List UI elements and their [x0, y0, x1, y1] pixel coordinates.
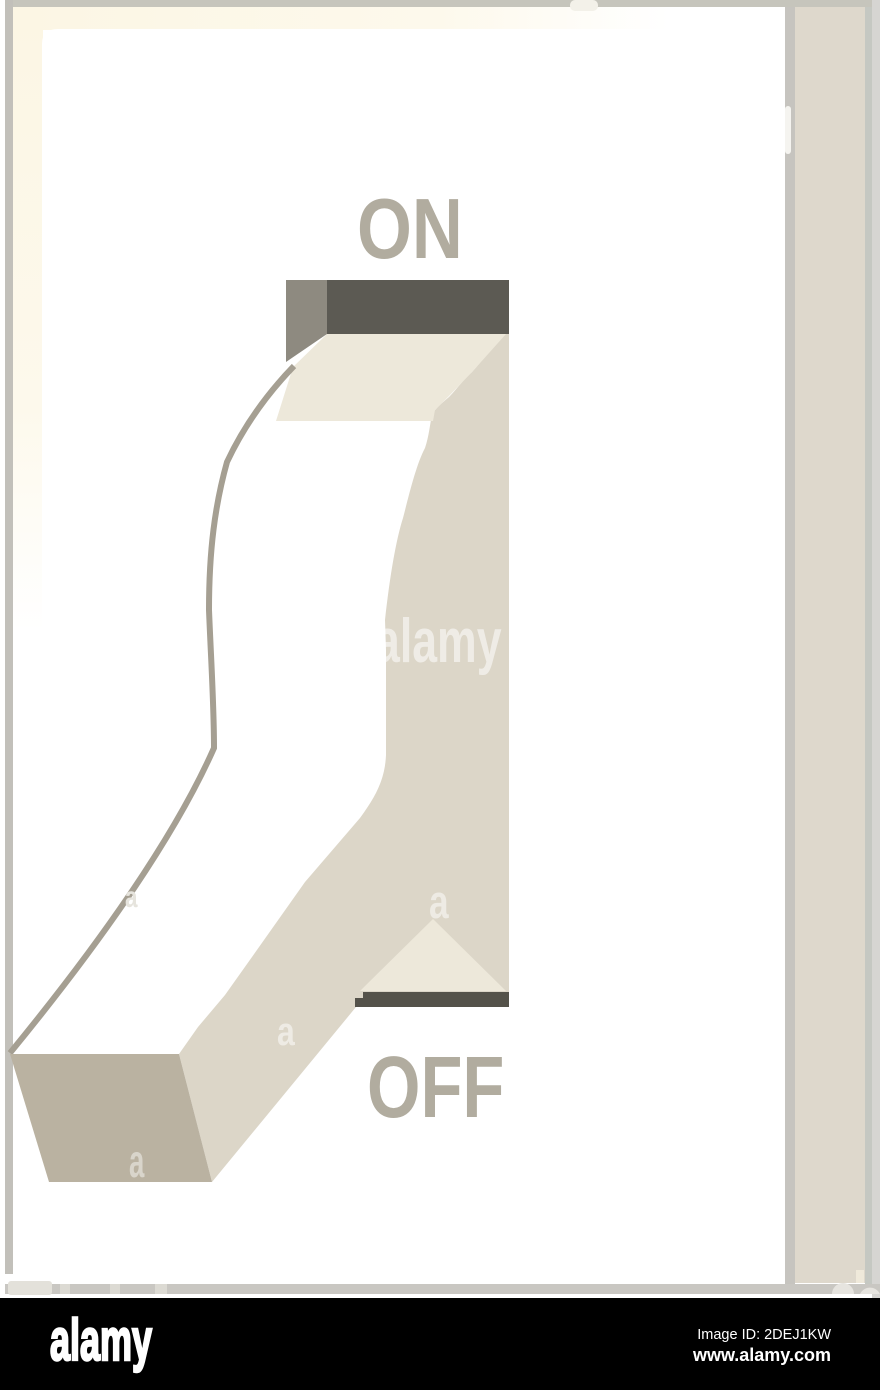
- svg-text:www.alamy.com: www.alamy.com: [692, 1345, 831, 1365]
- svg-text:ON: ON: [357, 181, 463, 277]
- svg-text:Image ID: 2DEJ1KW: Image ID: 2DEJ1KW: [697, 1327, 831, 1343]
- svg-text:alamy: alamy: [375, 607, 502, 676]
- svg-text:a: a: [429, 875, 449, 928]
- svg-text:a: a: [277, 1009, 296, 1054]
- svg-text:a: a: [125, 880, 138, 914]
- svg-text:OFF: OFF: [367, 1038, 504, 1136]
- svg-text:alamy: alamy: [50, 1308, 152, 1373]
- svg-text:a: a: [129, 1137, 145, 1188]
